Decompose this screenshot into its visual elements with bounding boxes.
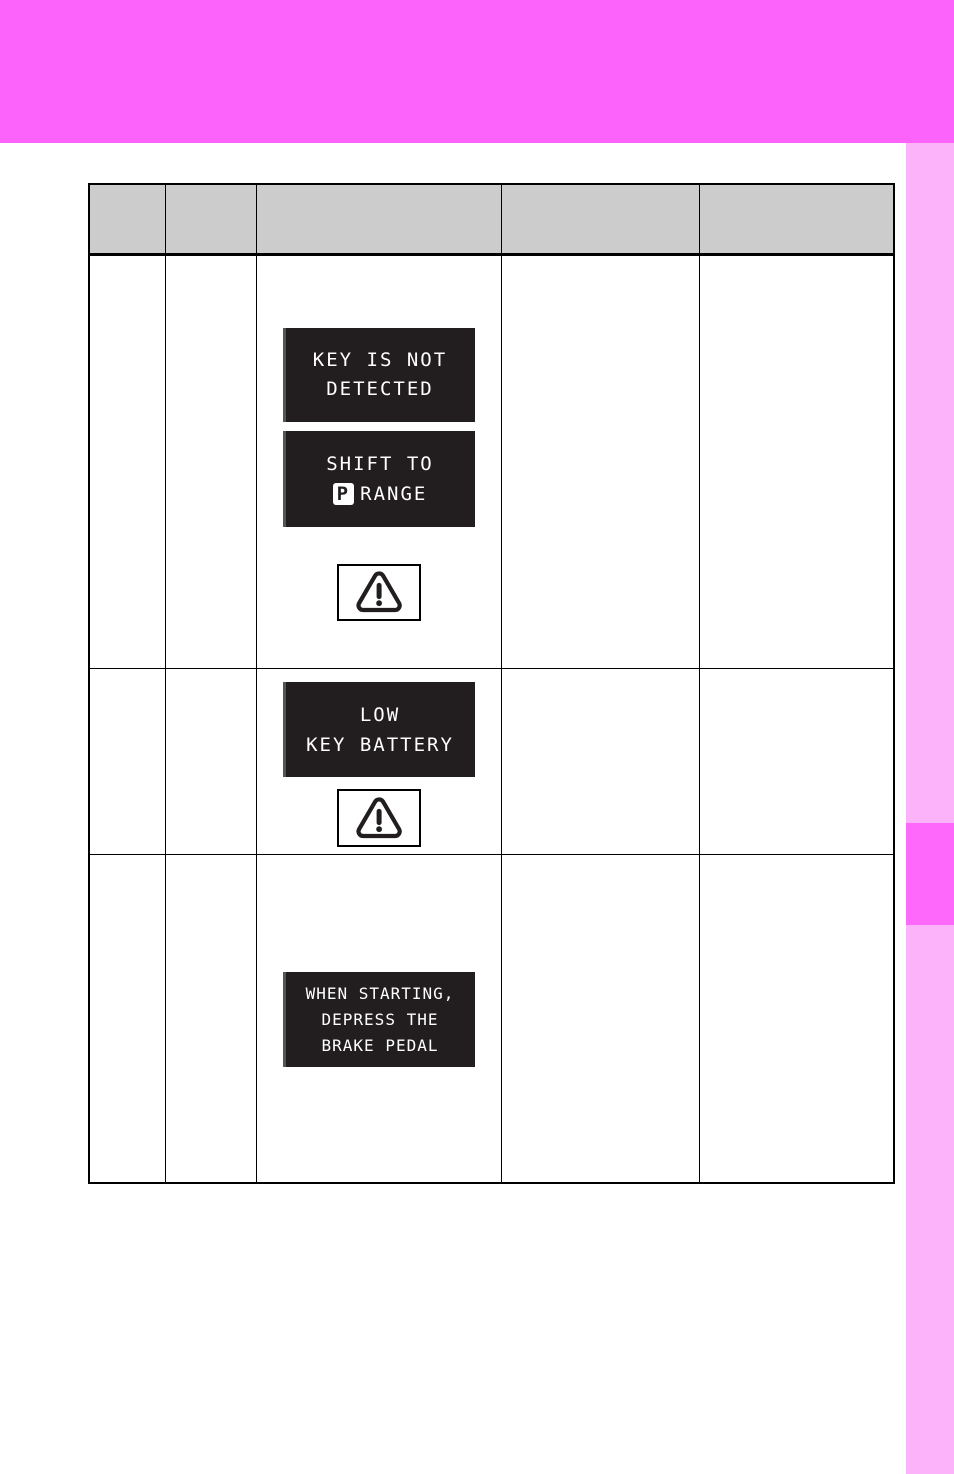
- table-cell: [89, 669, 165, 855]
- display-when-starting-depress-brake: WHEN STARTING, DEPRESS THE BRAKE PEDAL: [283, 972, 475, 1067]
- display-key-not-detected: KEY IS NOT DETECTED: [283, 328, 475, 422]
- chapter-tab-strip: [906, 143, 954, 1474]
- table-header-cell: [501, 184, 699, 255]
- table-cell-display: LOW KEY BATTERY: [256, 669, 501, 855]
- park-position-symbol: P: [333, 483, 354, 505]
- display-text-line: BRAKE PEDAL: [322, 1033, 439, 1059]
- table-cell: [165, 669, 256, 855]
- table-header-row: [89, 184, 894, 255]
- display-low-key-battery: LOW KEY BATTERY: [283, 682, 475, 777]
- table-cell: [501, 255, 699, 669]
- table-cell: [165, 855, 256, 1183]
- table-cell: [501, 669, 699, 855]
- table-row: KEY IS NOT DETECTED SHIFT TO PRANGE: [89, 255, 894, 669]
- table-header-cell: [256, 184, 501, 255]
- table-cell-display: WHEN STARTING, DEPRESS THE BRAKE PEDAL: [256, 855, 501, 1183]
- display-text-line: SHIFT TO: [326, 449, 434, 479]
- display-text-line: KEY BATTERY: [306, 730, 454, 760]
- page-header-band: [0, 0, 954, 143]
- display-text-line: LOW: [360, 700, 400, 730]
- warning-triangle-icon: [354, 797, 404, 840]
- table-cell: [89, 855, 165, 1183]
- manual-page: { "page": { "background": "#ffffff", "he…: [0, 0, 954, 1474]
- master-warning-indicator: [337, 564, 421, 621]
- table-cell: [699, 669, 894, 855]
- table-cell: [699, 255, 894, 669]
- table-row: LOW KEY BATTERY: [89, 669, 894, 855]
- chapter-tab-marker: [906, 823, 954, 925]
- display-shift-to-p-range: SHIFT TO PRANGE: [283, 431, 475, 527]
- table-cell: [89, 255, 165, 669]
- display-text-line: DETECTED: [326, 375, 434, 404]
- table-cell: [501, 855, 699, 1183]
- table-header-cell: [165, 184, 256, 255]
- table-cell: [165, 255, 256, 669]
- warning-message-table: KEY IS NOT DETECTED SHIFT TO PRANGE: [88, 183, 895, 1184]
- display-text-line: DEPRESS THE: [322, 1007, 439, 1033]
- master-warning-indicator: [337, 789, 421, 847]
- table-header-cell: [89, 184, 165, 255]
- table-header-cell: [699, 184, 894, 255]
- warning-triangle-icon: [354, 571, 404, 614]
- display-text-line: WHEN STARTING,: [306, 981, 455, 1007]
- display-text-line: PRANGE: [333, 479, 428, 509]
- display-text-line: KEY IS NOT: [313, 346, 447, 375]
- table-cell-display: KEY IS NOT DETECTED SHIFT TO PRANGE: [256, 255, 501, 669]
- table-cell: [699, 855, 894, 1183]
- table-row: WHEN STARTING, DEPRESS THE BRAKE PEDAL: [89, 855, 894, 1183]
